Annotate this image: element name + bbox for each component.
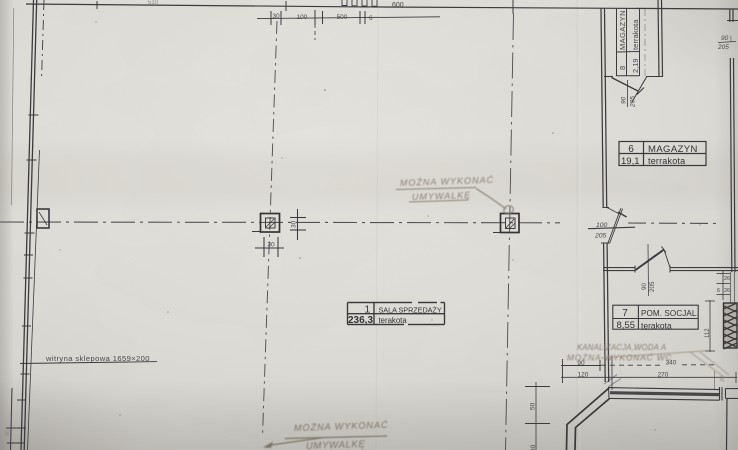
svg-text:MAGAZYN: MAGAZYN	[618, 10, 627, 50]
svg-text:205: 205	[649, 281, 656, 292]
svg-text:2,19: 2,19	[631, 58, 640, 73]
svg-text:205: 205	[630, 96, 637, 108]
svg-text:6: 6	[628, 144, 634, 155]
svg-text:30: 30	[291, 220, 298, 228]
svg-text:terrakota: terrakota	[631, 19, 640, 50]
svg-text:600: 600	[392, 2, 404, 9]
svg-text:26: 26	[724, 276, 730, 282]
svg-text:UMYWALKĘ: UMYWALKĘ	[306, 439, 366, 450]
svg-text:50: 50	[530, 402, 537, 410]
svg-text:6: 6	[717, 288, 720, 294]
svg-text:8,55: 8,55	[617, 320, 636, 331]
svg-text:100: 100	[297, 14, 308, 21]
svg-text:30: 30	[267, 242, 275, 249]
svg-text:POM. SOCJAL.: POM. SOCJAL.	[641, 309, 699, 318]
svg-text:500: 500	[337, 14, 348, 21]
svg-text:90 |: 90 |	[721, 35, 732, 42]
svg-text:20: 20	[720, 375, 726, 383]
svg-text:terakota: terakota	[641, 321, 672, 331]
svg-text:30: 30	[272, 13, 280, 20]
svg-text:100: 100	[596, 222, 608, 229]
svg-text:19,1: 19,1	[621, 156, 640, 167]
svg-text:120: 120	[578, 371, 589, 378]
svg-text:terrakota: terrakota	[648, 156, 685, 166]
svg-text:terakota: terakota	[379, 316, 408, 325]
svg-text:6: 6	[369, 15, 373, 22]
svg-text:KANALIZACJA,WODA A: KANALIZACJA,WODA A	[577, 343, 666, 352]
svg-text:205: 205	[594, 233, 607, 240]
svg-text:270: 270	[658, 371, 669, 378]
svg-text:7: 7	[622, 308, 628, 319]
svg-text:90: 90	[621, 96, 628, 104]
svg-text:510: 510	[148, 0, 159, 6]
svg-text:26: 26	[724, 288, 730, 294]
svg-text:witryna sklepowa 1659×200: witryna sklepowa 1659×200	[45, 354, 150, 363]
svg-text:MAGAZYN: MAGAZYN	[648, 144, 698, 155]
svg-text:50: 50	[5, 429, 11, 436]
svg-text:112: 112	[705, 328, 711, 338]
svg-text:205: 205	[717, 44, 729, 51]
svg-text:8: 8	[618, 66, 627, 70]
svg-text:90: 90	[530, 444, 537, 450]
svg-text:90: 90	[641, 282, 648, 290]
